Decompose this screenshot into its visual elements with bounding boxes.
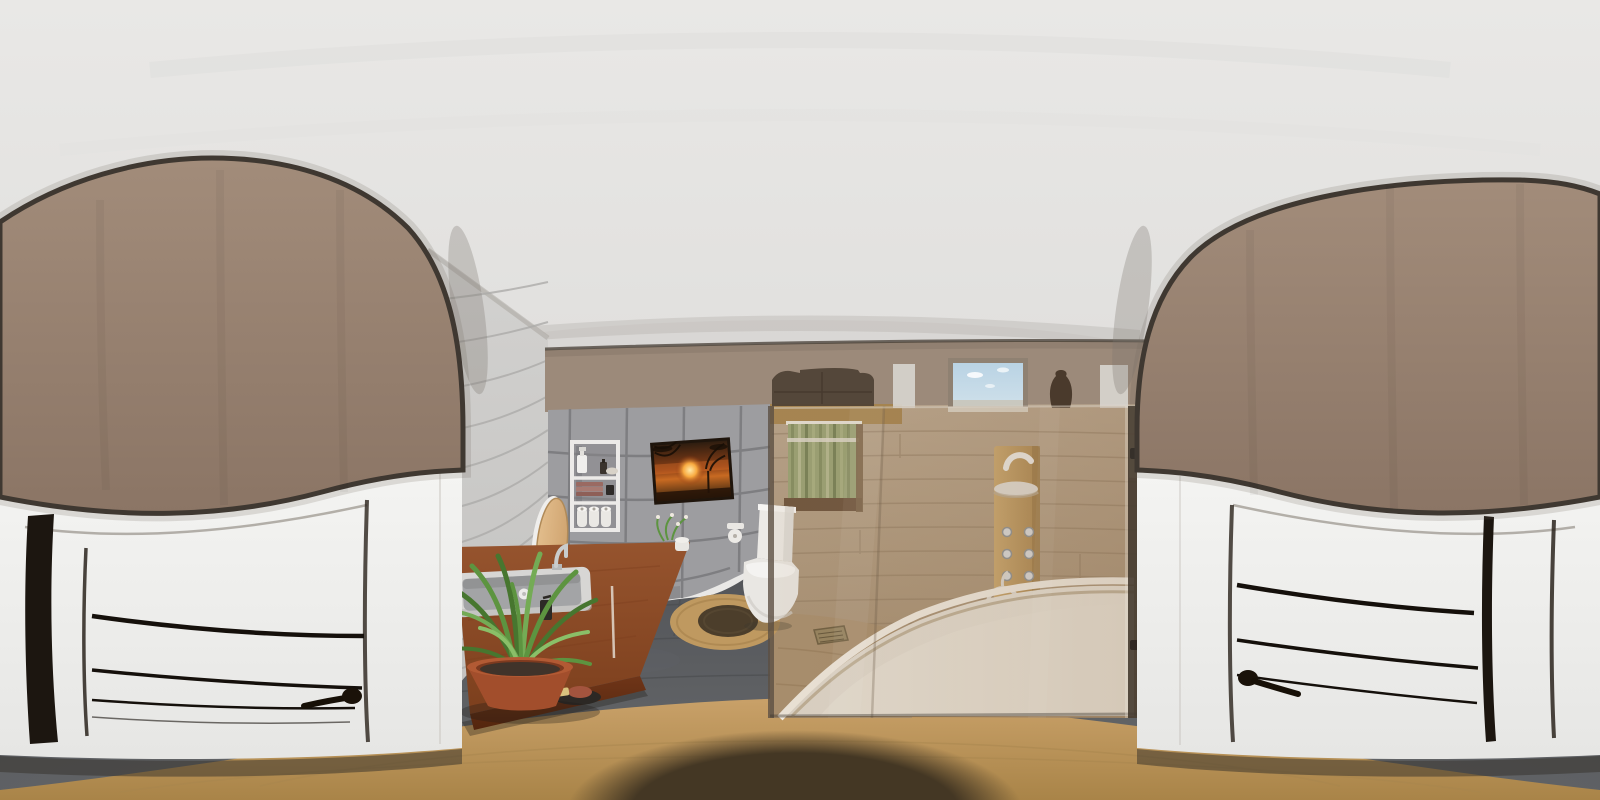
panorama-canvas[interactable] [0,0,1600,800]
panorama-viewport[interactable] [0,0,1600,800]
towels [576,482,603,487]
wall-shelf [572,442,618,530]
sofa-reflection [772,368,874,406]
left-wall-dome [0,158,463,513]
wall-pillar-reflection [893,364,915,408]
window [948,358,1028,412]
shower-glass [768,406,1144,718]
toilet-paper-rolls [577,507,611,528]
wall-art [650,437,734,504]
